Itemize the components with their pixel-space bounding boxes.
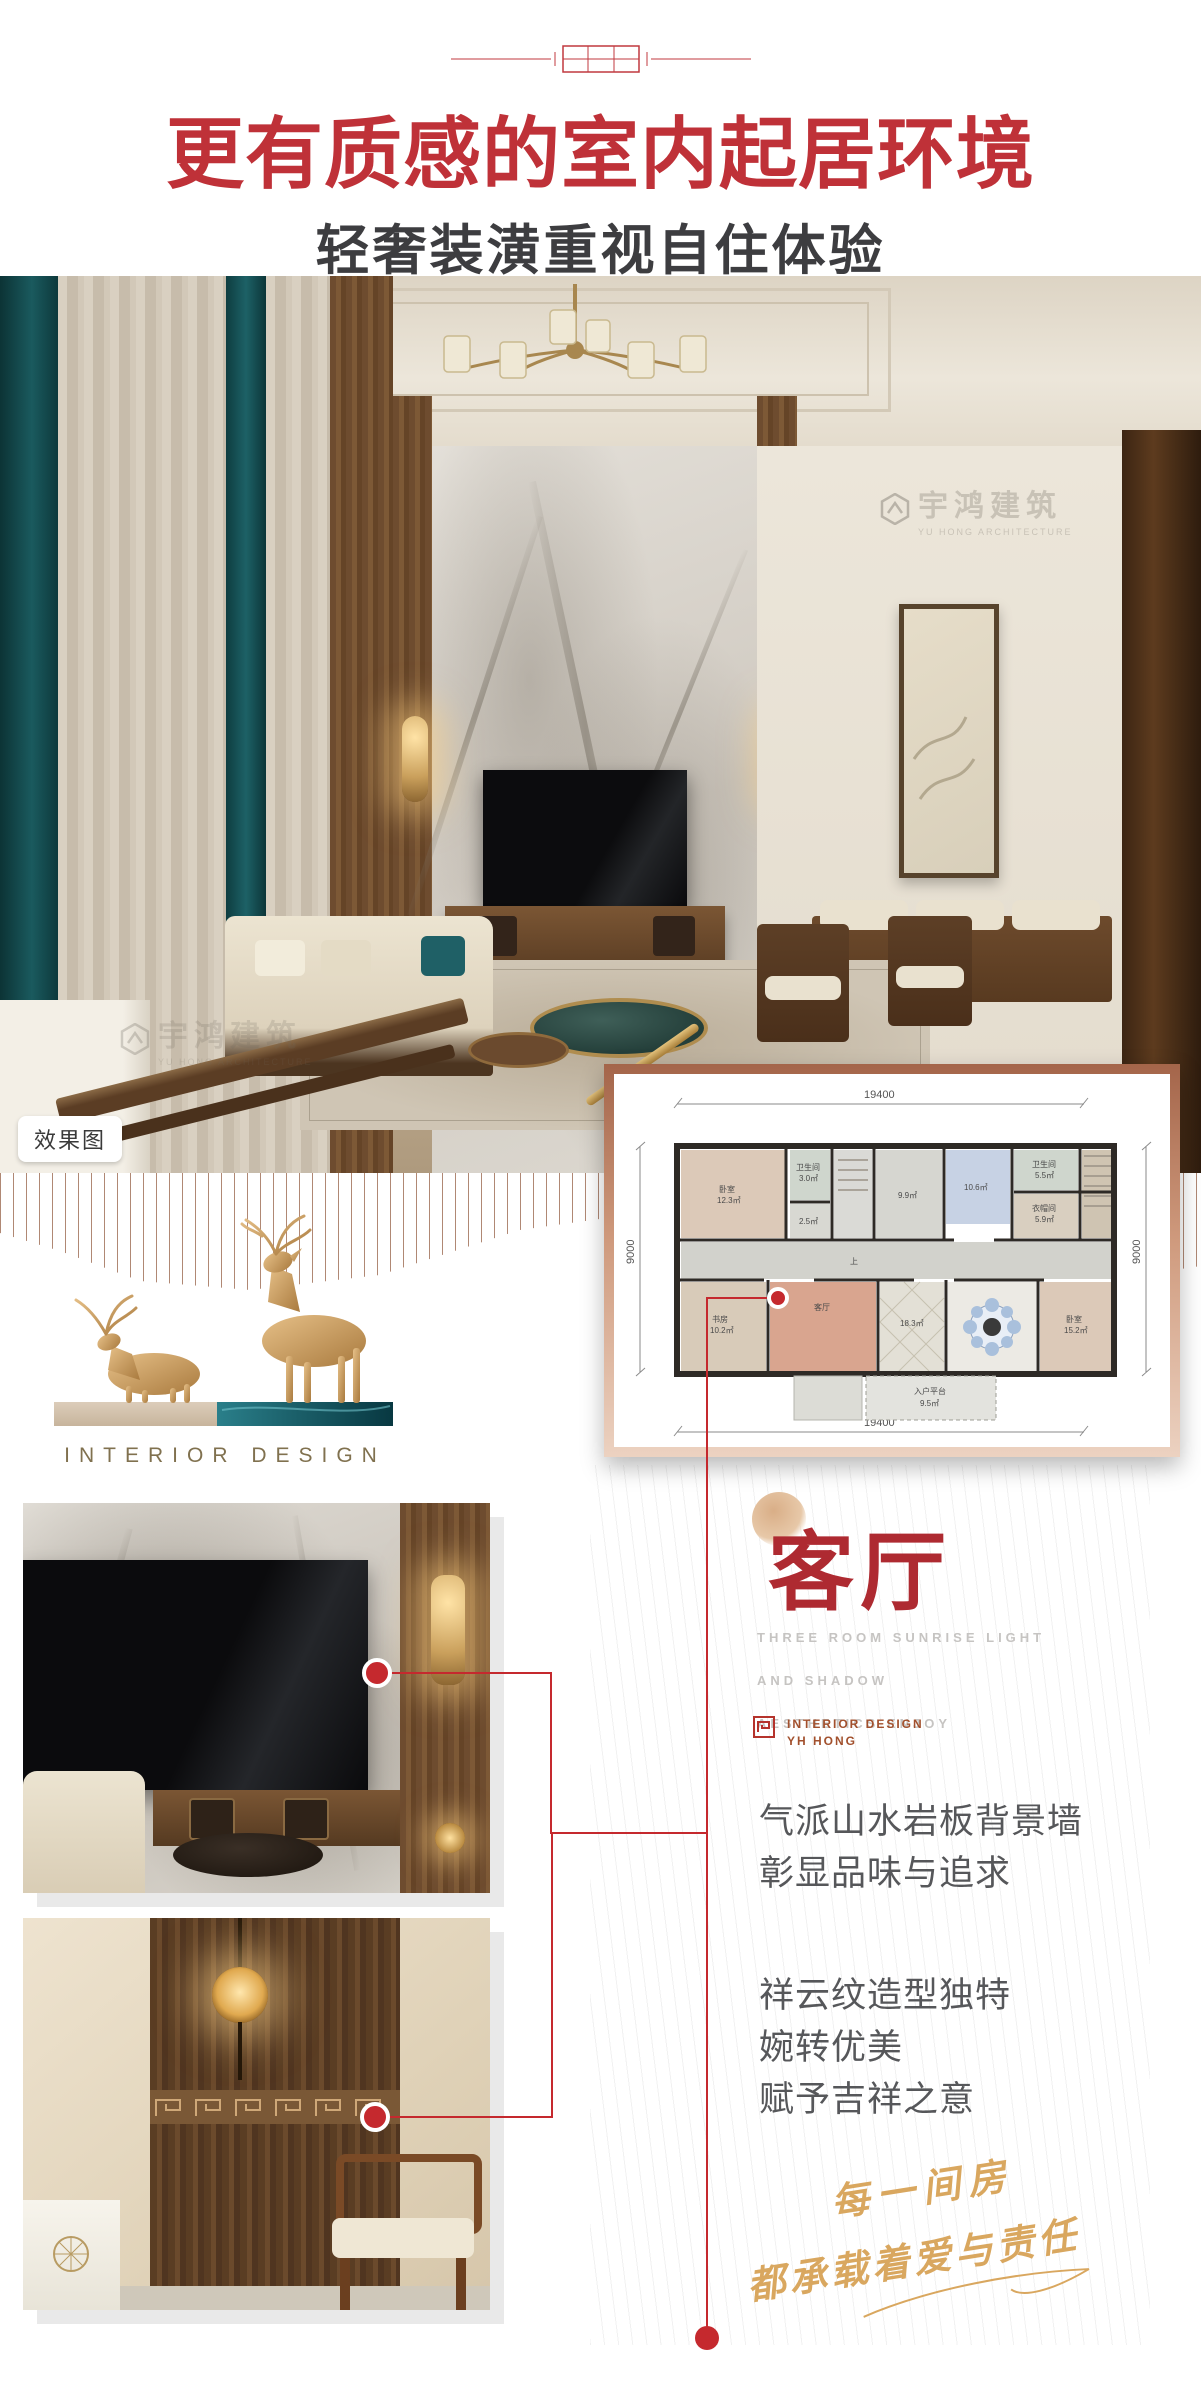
hero-photo: 宇鸿建筑YU HONG ARCHITECTURE 宇鸿建筑YU HONG ARC… (0, 276, 1201, 1173)
feature-text-2: 祥云纹造型独特 婉转优美 赋予吉祥之意 (759, 1970, 1189, 2126)
yh-seal-icon (753, 1716, 775, 1738)
dim-left: 9000 (625, 1240, 637, 1264)
watermark: 宇鸿建筑YU HONG ARCHITECTURE (880, 481, 1073, 537)
tagline-line: AND SHADOW (757, 1673, 1045, 1688)
studio-name-line: INTERIOR DESIGN (787, 1716, 924, 1733)
doorway (1122, 430, 1201, 1173)
tv-screen (23, 1560, 368, 1790)
watermark: 宇鸿建筑YU HONG ARCHITECTURE (120, 1011, 313, 1067)
dim-top: 19400 (864, 1089, 895, 1101)
chair (330, 2154, 478, 2310)
room-area: 9.9㎡ (898, 1191, 917, 1200)
floorplan-svg: 19400 19400 9000 9000 (614, 1074, 1170, 1447)
room-label: 卧室 (1066, 1314, 1082, 1324)
poster-page: 更有质感的室内起居环境 轻奢装潢重视自住体验 (0, 0, 1201, 2383)
hexagon-logo-icon (120, 1023, 150, 1055)
tv-screen (483, 770, 687, 906)
room-area: 2.5㎡ (799, 1217, 818, 1226)
studio-name-line: YH HONG (787, 1733, 924, 1750)
studio-signature: INTERIOR DESIGN YH HONG (753, 1716, 924, 1750)
wall-art-frame (899, 604, 999, 878)
base-bar-left (54, 1402, 217, 1426)
wall-sconce-icon (435, 1823, 465, 1853)
sofa-corner (23, 1771, 145, 1893)
room-label: 卫生间 (1032, 1159, 1056, 1169)
room-label: 客厅 (814, 1302, 830, 1312)
pendant-lamp-icon (212, 1967, 268, 2023)
wall-sconce-icon (402, 716, 428, 802)
feature-text-1: 气派山水岩板背景墙 彰显品味与追求 (759, 1796, 1189, 1900)
section-title: 客厅 (768, 1502, 952, 1627)
hexagon-logo-icon (880, 493, 910, 525)
side-table (173, 1833, 323, 1877)
room-area: 12.3㎡ (717, 1196, 741, 1205)
page-subtitle: 轻奢装潢重视自住体验 (0, 206, 1201, 285)
pendant-drop (238, 2022, 242, 2080)
room-area: 15.2㎡ (1064, 1326, 1088, 1335)
teal-pillow (421, 936, 465, 976)
room-label: 衣帽间 (1032, 1203, 1056, 1213)
armchair (757, 924, 849, 1042)
photo-tv-wall-detail (23, 1503, 490, 1893)
living-room-highlight (770, 1282, 876, 1372)
tagline-line: THREE ROOM SUNRISE LIGHT (757, 1630, 1045, 1645)
wall-sconce-icon (431, 1575, 465, 1685)
room-label: 卫生间 (796, 1162, 820, 1172)
room-area: 10.2㎡ (710, 1326, 734, 1335)
brand-wordmark: INTERIOR DESIGN (40, 1444, 410, 1468)
room-area: 5.9㎡ (1035, 1215, 1054, 1224)
side-table (468, 1032, 569, 1068)
header-ornament-icon (0, 38, 1201, 80)
room-label: 卧室 (719, 1184, 735, 1194)
floorplan-card: 19400 19400 9000 9000 (604, 1064, 1180, 1457)
deer-figures (95, 1248, 366, 1403)
room-area: 10.6㎡ (964, 1183, 988, 1192)
room-label: 入户平台 (914, 1386, 946, 1396)
deer-ornament (52, 1196, 397, 1446)
chair-cushion (896, 966, 964, 988)
room-area: 5.5㎡ (1035, 1171, 1054, 1180)
console-door (653, 916, 695, 956)
chandelier-icon (430, 284, 720, 444)
room-area: 3.0㎡ (799, 1174, 818, 1183)
dim-right: 9000 (1131, 1240, 1143, 1264)
bench-cushion (1012, 900, 1100, 930)
floorplan-canvas: 19400 19400 9000 9000 (614, 1074, 1170, 1447)
base-bar-teal (217, 1402, 393, 1426)
render-tag: 效果图 (18, 1116, 122, 1162)
chair-cushion (765, 976, 841, 1000)
stairs-label: 上 (850, 1257, 858, 1266)
pillow (321, 940, 371, 976)
room-label: 书房 (712, 1314, 728, 1324)
pillow (255, 940, 305, 976)
cabinet (23, 2200, 120, 2310)
photo-lamp-detail (23, 1918, 490, 2310)
room-area: 9.5㎡ (920, 1399, 939, 1408)
greek-fret-band (150, 2090, 400, 2124)
page-title: 更有质感的室内起居环境 (0, 92, 1201, 204)
armchair (888, 916, 972, 1026)
room-area: 18.3㎡ (900, 1319, 924, 1328)
